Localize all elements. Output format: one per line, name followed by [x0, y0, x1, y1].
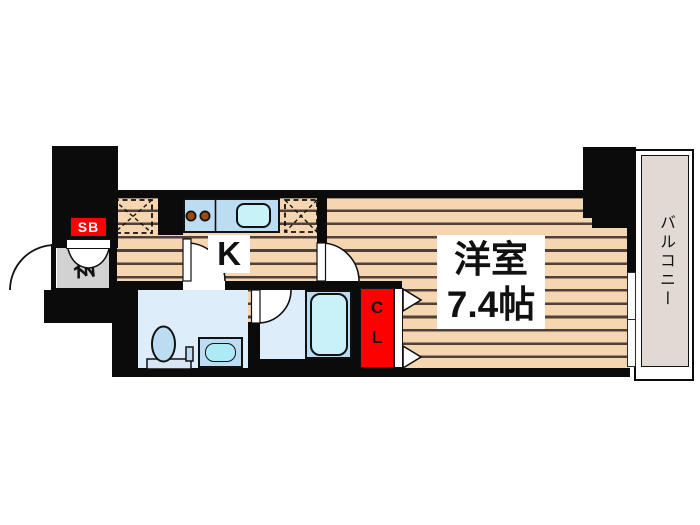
- wall: [352, 288, 360, 368]
- closet-box: CL: [360, 288, 394, 368]
- entrance-step: [109, 245, 117, 290]
- kitchen-sink: [236, 203, 271, 228]
- closet-label: CL: [370, 293, 384, 353]
- shoe-box-label: SB: [78, 219, 99, 235]
- floor-plan: 玄 バルコニー SB CL K 洋室: [0, 0, 700, 525]
- entrance-floor: 玄: [57, 246, 110, 290]
- window-sash: [627, 272, 636, 320]
- balcony-label: バルコニー: [653, 214, 677, 309]
- wall: [627, 228, 636, 272]
- room-size: 7.4帖: [447, 282, 535, 327]
- wall: [317, 192, 327, 243]
- door-opening: [183, 281, 225, 290]
- wall: [158, 192, 183, 235]
- entry-door-arc: [10, 245, 55, 290]
- shoe-cabinet: [66, 239, 111, 249]
- wall: [592, 218, 636, 228]
- washbasin-bowl: [205, 343, 236, 362]
- shoe-box: SB: [70, 217, 107, 237]
- wall: [112, 368, 630, 377]
- entry-door-swing: [10, 245, 55, 290]
- wall: [583, 147, 636, 218]
- balcony-floor: バルコニー: [641, 155, 689, 367]
- entrance-label: 玄: [67, 257, 101, 280]
- bathtub-icon: [310, 293, 348, 356]
- wall: [44, 288, 112, 323]
- wall: [112, 288, 138, 368]
- room-name: 洋室: [454, 237, 528, 282]
- wall: [248, 359, 360, 368]
- western-room-label: 洋室 7.4帖: [437, 235, 545, 329]
- entry-door-leaf: [51, 244, 56, 290]
- kitchen-label: K: [208, 235, 250, 273]
- window-sash: [627, 319, 636, 367]
- kitchen-label-text: K: [217, 235, 241, 273]
- wall: [112, 281, 183, 290]
- closet-door-panel: [394, 288, 403, 368]
